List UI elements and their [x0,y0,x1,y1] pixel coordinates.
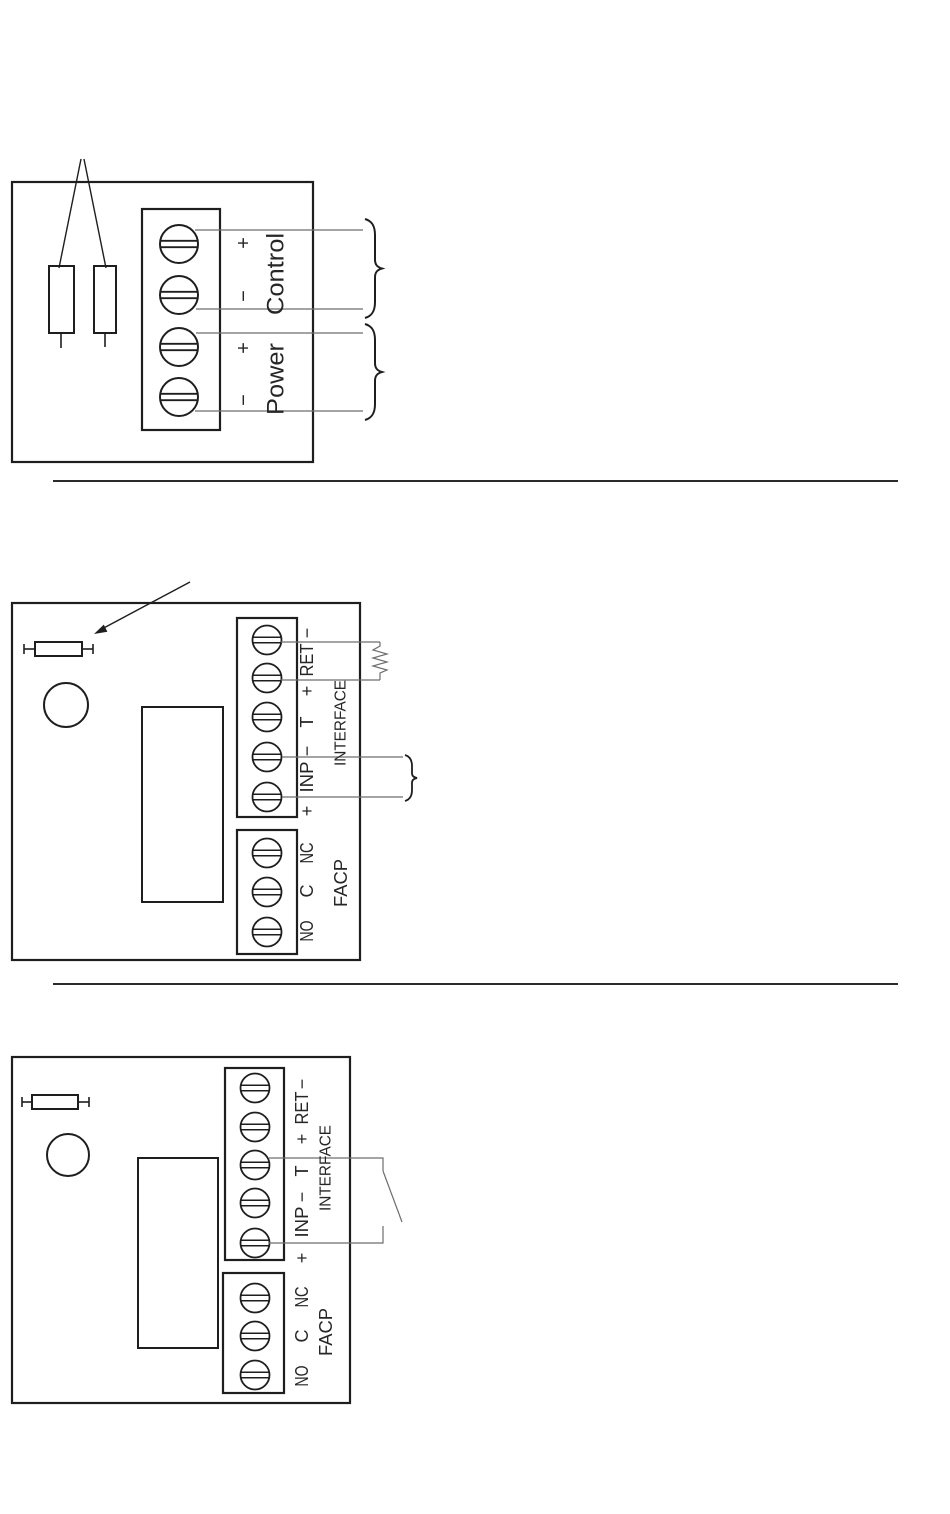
label-inp: INP [292,1207,312,1238]
curly-brace [365,324,382,420]
terminal-screw [253,664,282,693]
curly-brace [405,755,417,801]
figure-interface-resistor [12,582,417,960]
device-outline [12,182,313,462]
label-power-plus: + [233,342,255,354]
fuse [49,266,74,333]
label-no: NO [297,921,317,942]
label-ret: RET [292,1091,312,1124]
terminal-screw [253,626,282,655]
fuse [32,1095,78,1109]
label-interface: INTERFACE [333,680,350,766]
terminal-screw [241,1284,270,1313]
label-ret: RET [297,643,317,676]
terminal-screw [241,1361,270,1390]
page-canvas: + − Control + − Power [0,0,950,1514]
terminal-screw [160,225,198,263]
label-t: T [292,1166,312,1177]
terminal-block-interface [225,1068,284,1260]
label-c: C [292,1330,312,1343]
mounting-hole [44,683,88,727]
label-control: Control [263,233,290,315]
terminal-screw [241,1113,270,1142]
terminal-screw [241,1074,270,1103]
callout-line [59,159,81,268]
terminal-screw [253,878,282,907]
terminal-screw [253,783,282,812]
component-outline [142,707,223,902]
label-t: T [297,717,317,728]
label-facp: FACP [331,859,351,907]
terminal-screw [253,743,282,772]
label-interface: INTERFACE [318,1125,335,1211]
figure-interface-switch [12,1057,402,1403]
label-control-minus: − [233,290,255,302]
label-ret-plus: + [297,686,317,697]
label-ret-minus: − [292,1079,312,1090]
figure-control-power-labels: + − Control + − Power [233,233,290,415]
component-outline [138,1158,218,1348]
fuse [94,266,116,333]
mounting-hole [47,1134,89,1176]
figure-control-power [12,159,382,462]
label-inp-plus: + [297,806,317,817]
switch-blade [383,1171,402,1222]
terminal-block [142,209,220,430]
terminal-screw [241,1151,270,1180]
label-inp-minus: − [297,746,317,757]
arrowhead-icon [94,625,107,634]
terminal-screw [160,328,198,366]
label-nc: NC [292,1287,312,1308]
wire [269,1226,383,1243]
terminal-screw [253,703,282,732]
terminal-screw [253,839,282,868]
label-nc: NC [297,843,317,864]
terminal-screw [241,1322,270,1351]
fuse [35,642,82,656]
figure-interface-resistor-labels: − RET + T − INP + INTERFACE NC C NO FACP [297,628,351,942]
label-no: NO [292,1366,312,1387]
label-inp: INP [297,762,317,793]
label-power-minus: − [233,394,255,406]
label-ret-plus: + [292,1134,312,1145]
label-facp: FACP [316,1308,336,1356]
label-power: Power [263,343,290,415]
pointer-arrow [100,582,190,630]
label-inp-minus: − [292,1192,312,1203]
curly-brace [365,219,382,318]
terminal-screw [253,918,282,947]
terminal-screw [241,1189,270,1218]
figure-interface-switch-labels: − RET + T − INP + INTERFACE NC C NO FACP [292,1079,336,1387]
eol-resistor [373,642,387,680]
label-inp-plus: + [292,1253,312,1264]
terminal-screw [241,1229,270,1258]
label-control-plus: + [233,237,255,249]
terminal-screw [160,276,198,314]
terminal-block-interface [237,618,297,817]
callout-line [84,159,106,268]
label-c: C [297,885,317,898]
terminal-screw [160,378,198,416]
label-ret-minus: − [297,628,317,639]
